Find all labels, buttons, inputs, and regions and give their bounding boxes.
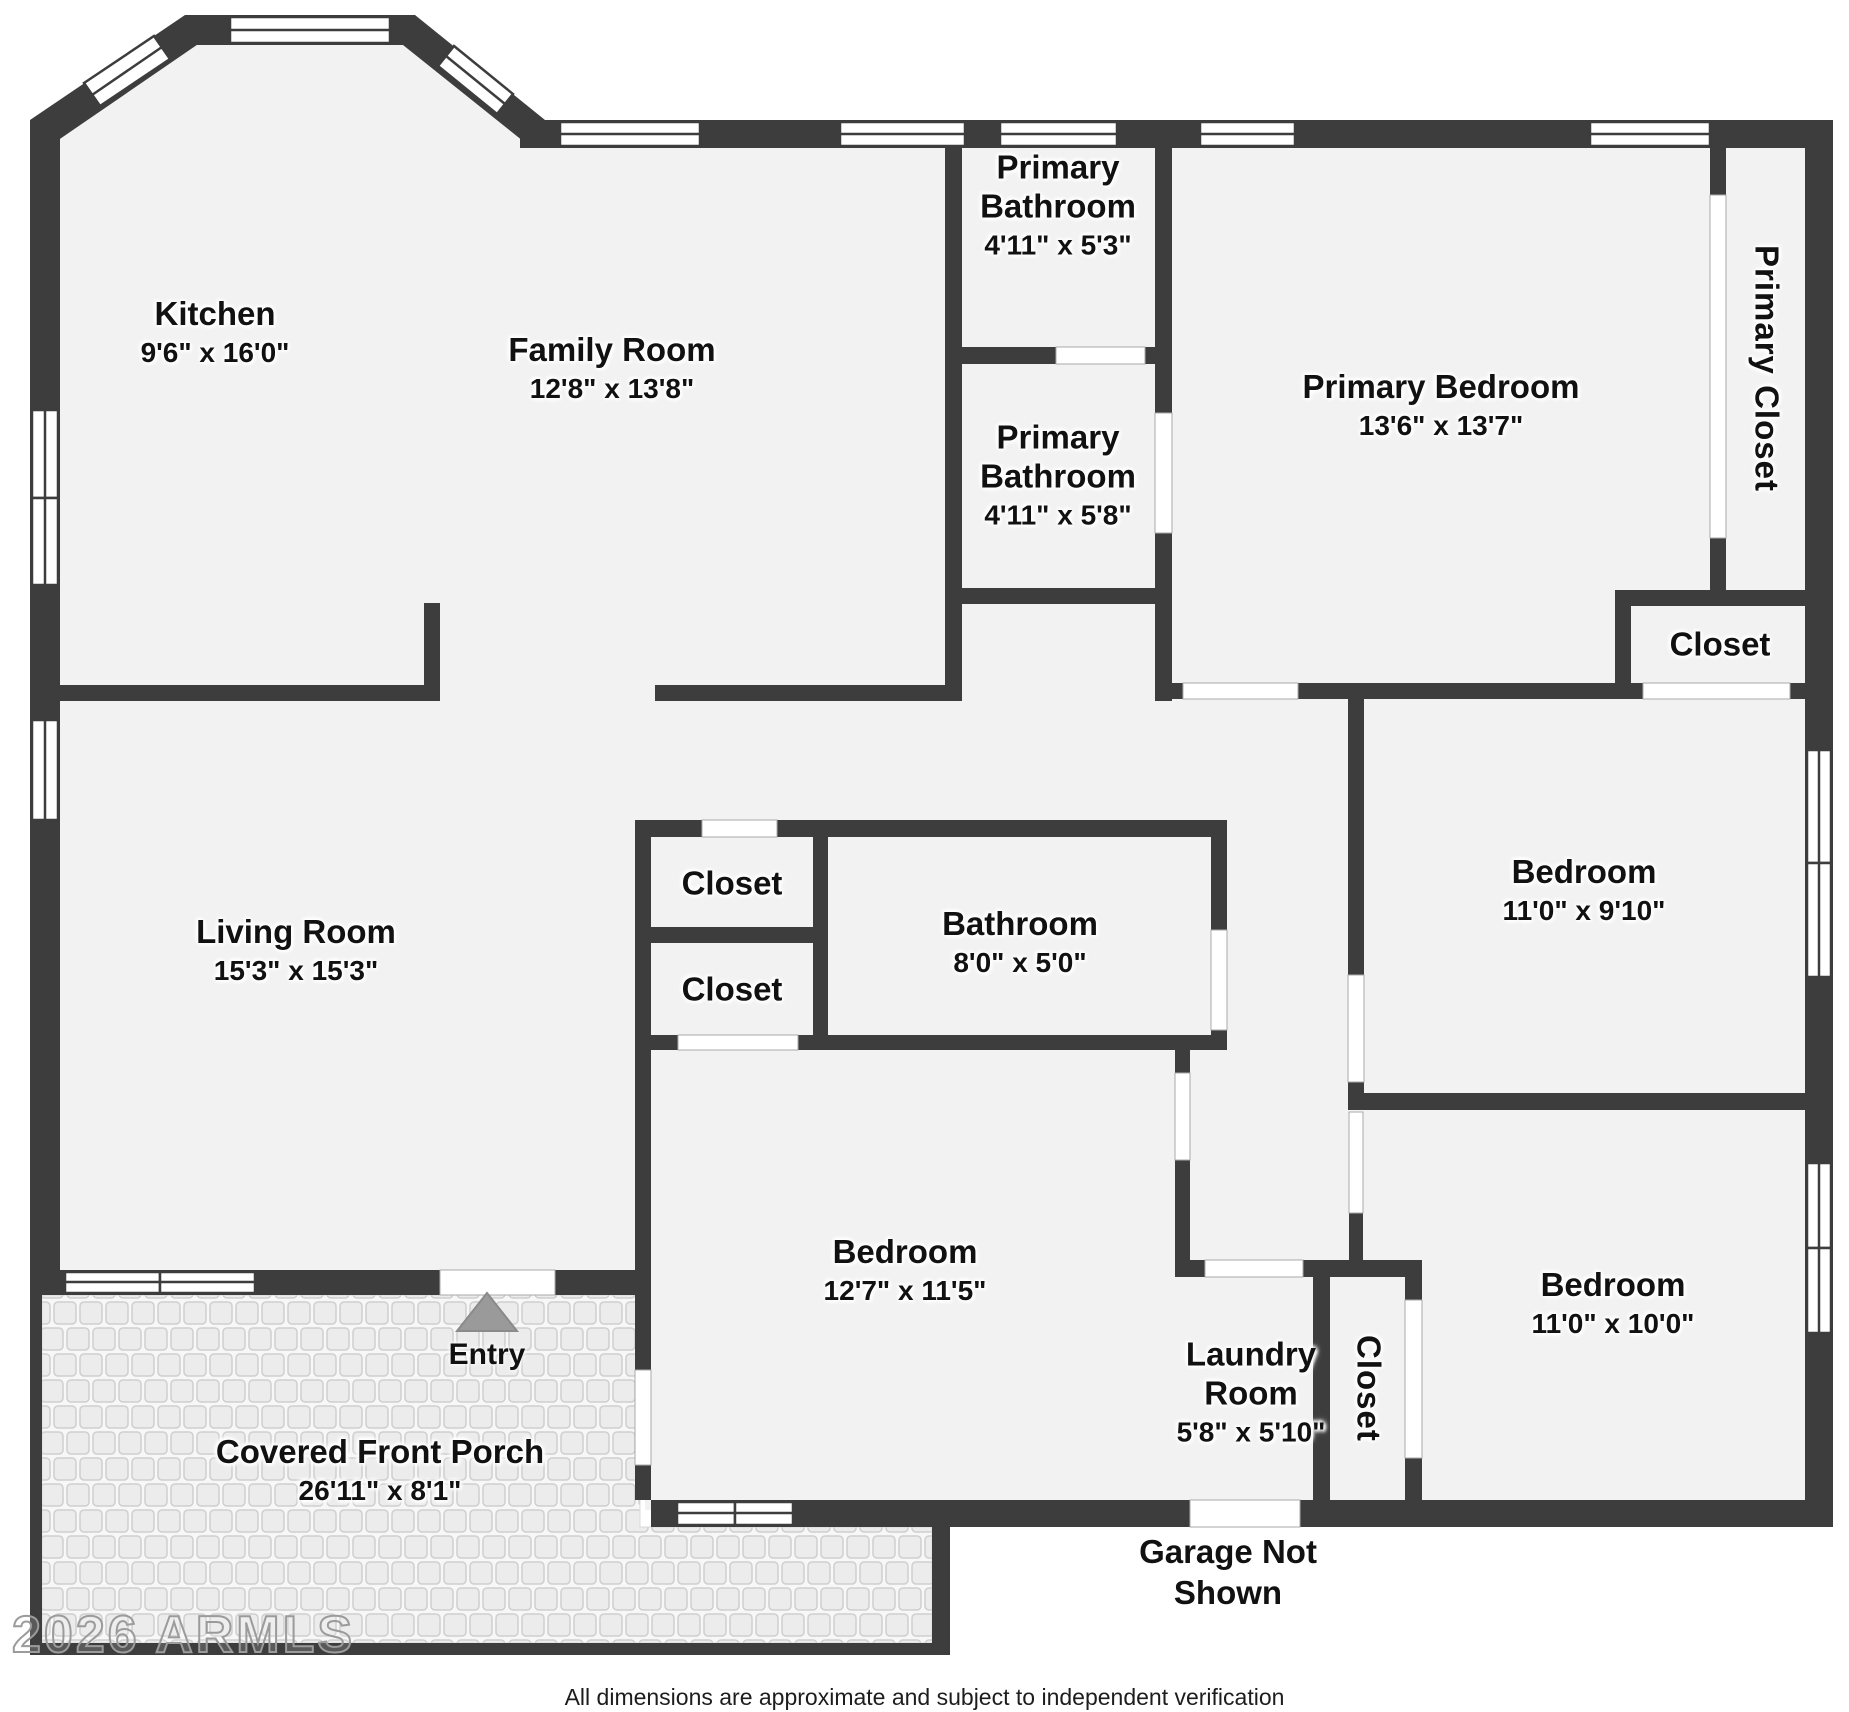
watermark: 2026 ARMLS bbox=[12, 1606, 355, 1664]
floor-plan-drawing: 2026 ARMLS bbox=[0, 0, 1849, 1712]
garage-note: Garage Not Shown bbox=[1088, 1531, 1368, 1614]
entry-label: Entry bbox=[449, 1338, 526, 1372]
footer-disclaimer: All dimensions are approximate and subje… bbox=[565, 1684, 1285, 1711]
floor-plan: 2026 ARMLS Kitchen 9'6" x 16'0" Family R… bbox=[0, 0, 1849, 1712]
